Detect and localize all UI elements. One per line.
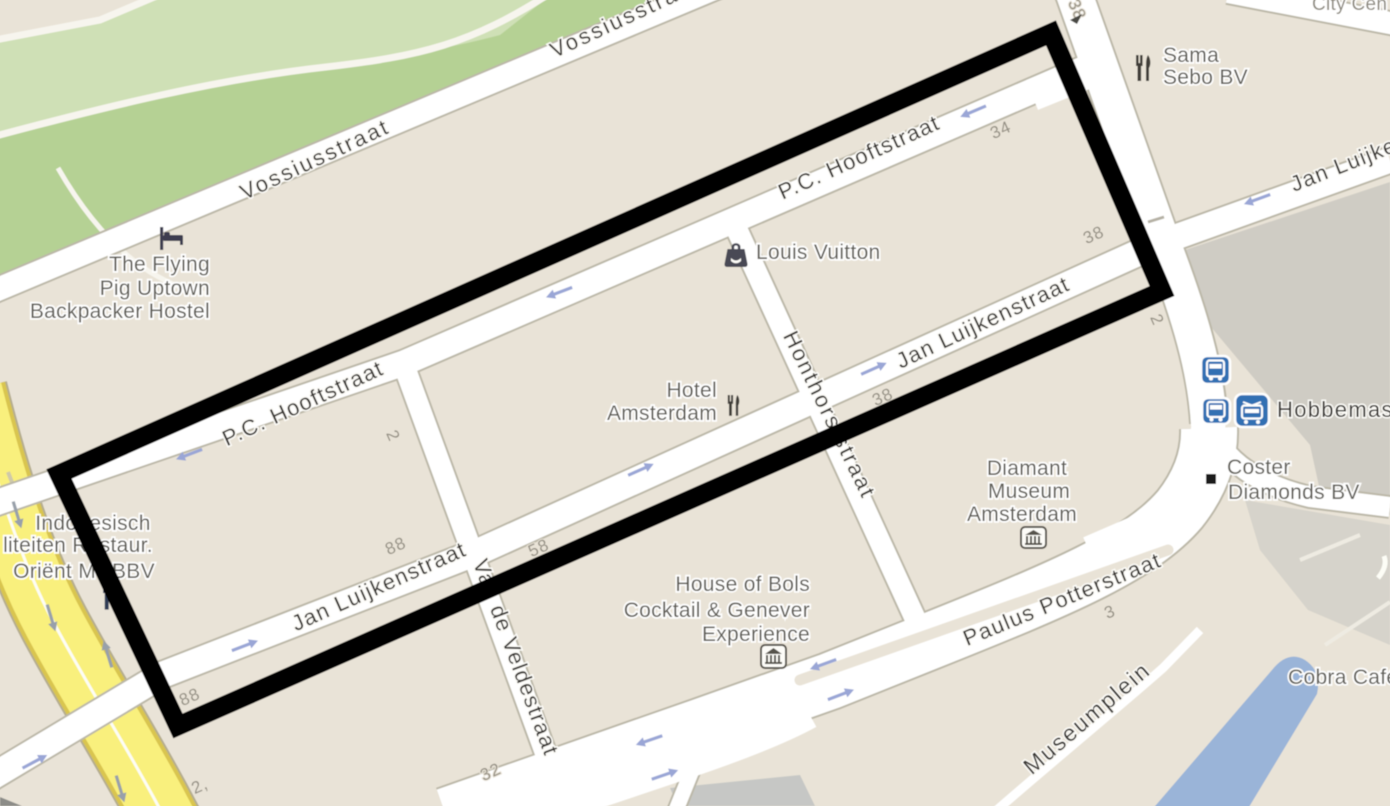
svg-text:Cobra Café: Cobra Café: [1288, 666, 1390, 689]
svg-text:Sama: Sama: [1163, 44, 1219, 67]
svg-text:Cocktail & Genever: Cocktail & Genever: [624, 599, 810, 622]
svg-text:Coster: Coster: [1227, 456, 1291, 479]
svg-text:liteiten Restaur.: liteiten Restaur.: [3, 534, 153, 557]
svg-text:Oriënt M: Oriënt M: [13, 560, 96, 583]
svg-text:Hotel: Hotel: [666, 379, 717, 402]
svg-text:The Flying: The Flying: [109, 253, 210, 276]
svg-text:Amsterdam: Amsterdam: [607, 402, 717, 425]
svg-text:Diamonds BV: Diamonds BV: [1228, 481, 1360, 504]
svg-text:Diamant: Diamant: [987, 457, 1067, 480]
svg-text:House of Bols: House of Bols: [675, 573, 810, 596]
svg-text:Hobbemastra: Hobbemastra: [1277, 397, 1390, 422]
svg-text:Museum: Museum: [988, 480, 1070, 503]
svg-text:Experience: Experience: [702, 623, 810, 646]
svg-text:Backpacker Hostel: Backpacker Hostel: [30, 300, 210, 323]
svg-text:Sebo BV: Sebo BV: [1163, 66, 1248, 89]
svg-text:Pig Uptown: Pig Uptown: [100, 277, 210, 300]
svg-text:Amsterdam: Amsterdam: [967, 503, 1077, 526]
svg-text:City Cen: City Cen: [1312, 0, 1387, 15]
svg-text:Louis Vuitton: Louis Vuitton: [756, 241, 881, 264]
